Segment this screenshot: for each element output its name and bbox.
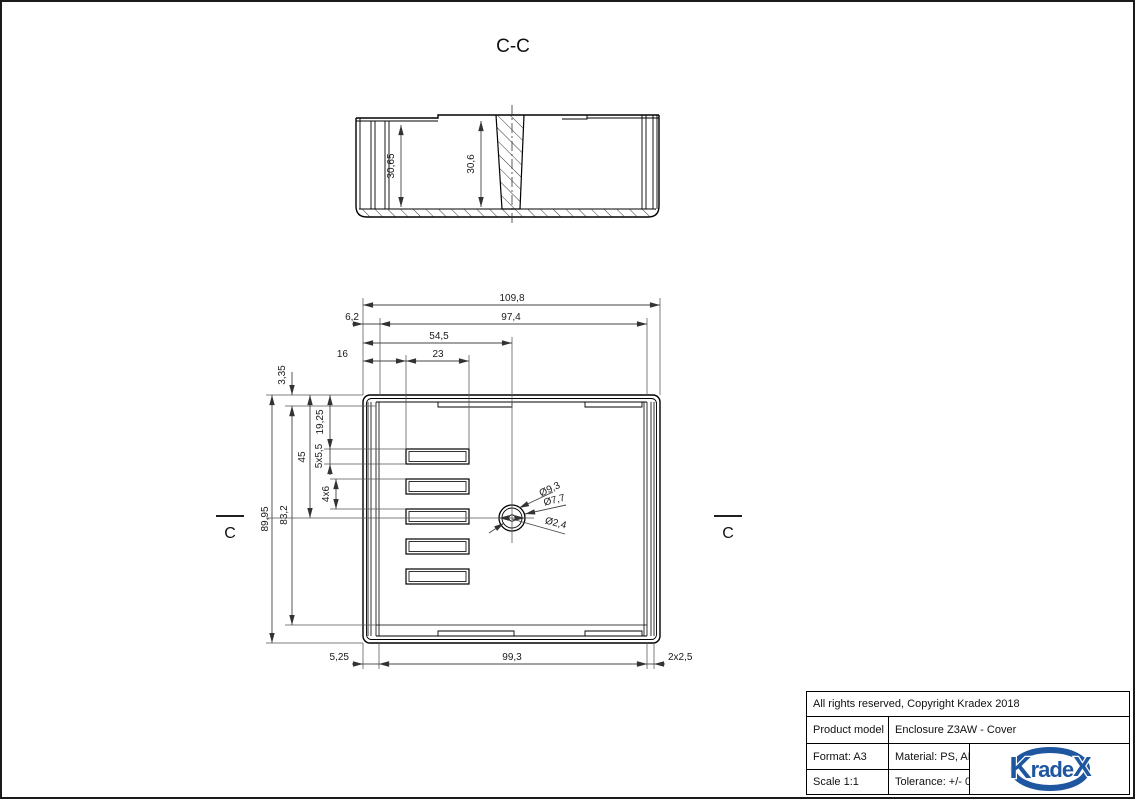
format-text: Format: A3 [813,751,867,763]
dim-slot-height: 5x5,5 [314,443,325,468]
copyright-text: All rights reserved, Copyright Kradex 20… [813,698,1020,710]
logo-letters-mid: rade [1030,757,1073,782]
title-block-tolerance: Tolerance: +/- 0.5 [889,770,970,794]
dim-inner-width-bottom: 99,3 [502,652,522,663]
dim-overall-height: 89,95 [260,506,271,531]
section-view-title: C-C [496,36,530,57]
dim-inner-width-top: 97,4 [501,312,521,323]
dim-inner-height: 83,2 [279,505,290,525]
section-marker-right: C [722,525,734,542]
dim-slot-left-offset: 16 [337,349,349,360]
kradex-logo: KradeX [998,746,1102,792]
tolerance-text: Tolerance: +/- 0.5 [895,776,970,788]
section-marker-left: C [224,525,236,542]
dim-wall-offset: 5,25 [330,652,350,663]
dim-section-depth-left: 30,65 [386,153,397,178]
title-block-format: Format: A3 [807,744,889,770]
center-wall-hatch [496,115,524,209]
dim-center-offset: 54,5 [429,331,449,342]
bottom-hatch [359,210,656,217]
logo-letter-k: K [1009,750,1032,785]
logo-letter-x: X [1073,751,1092,782]
section-markers: C C [216,516,742,542]
dim-slot-gap: 4x6 [321,486,332,503]
dim-top-rim: 3,35 [277,365,288,385]
title-block-product-label: Product model [807,717,889,744]
title-block-logo-cell: KradeX [970,744,1129,794]
product-label-text: Product model [813,724,884,736]
dim-corner: 2x2,5 [668,652,693,663]
title-block-copyright: All rights reserved, Copyright Kradex 20… [807,692,1129,717]
plan-view [363,395,660,643]
dim-hole-center-offset: 45 [297,451,308,463]
dim-slot-top-offset: 19,25 [315,409,326,434]
scale-text: Scale 1:1 [813,776,859,788]
product-value-text: Enclosure Z3AW - Cover [895,724,1016,736]
title-block-material: Material: PS, ABS [889,744,970,770]
title-block: All rights reserved, Copyright Kradex 20… [806,691,1130,795]
title-block-product-value: Enclosure Z3AW - Cover [889,717,1129,744]
dimension-texts: 109,8 6,2 97,4 54,5 16 23 3,35 89,95 83,… [260,293,693,663]
dim-slot-width: 23 [432,349,444,360]
material-text: Material: PS, ABS [895,751,970,763]
dim-overall-width: 109,8 [499,293,524,304]
title-block-scale: Scale 1:1 [807,770,889,794]
dim-left-offset: 6,2 [345,312,359,323]
dim-section-depth-right: 30,6 [466,154,477,174]
vent-slots [406,449,469,584]
technical-drawing-canvas: C-C 30,65 30,6 [2,2,1133,797]
extension-lines [266,298,660,669]
drawing-sheet: C-C 30,65 30,6 [0,0,1135,799]
